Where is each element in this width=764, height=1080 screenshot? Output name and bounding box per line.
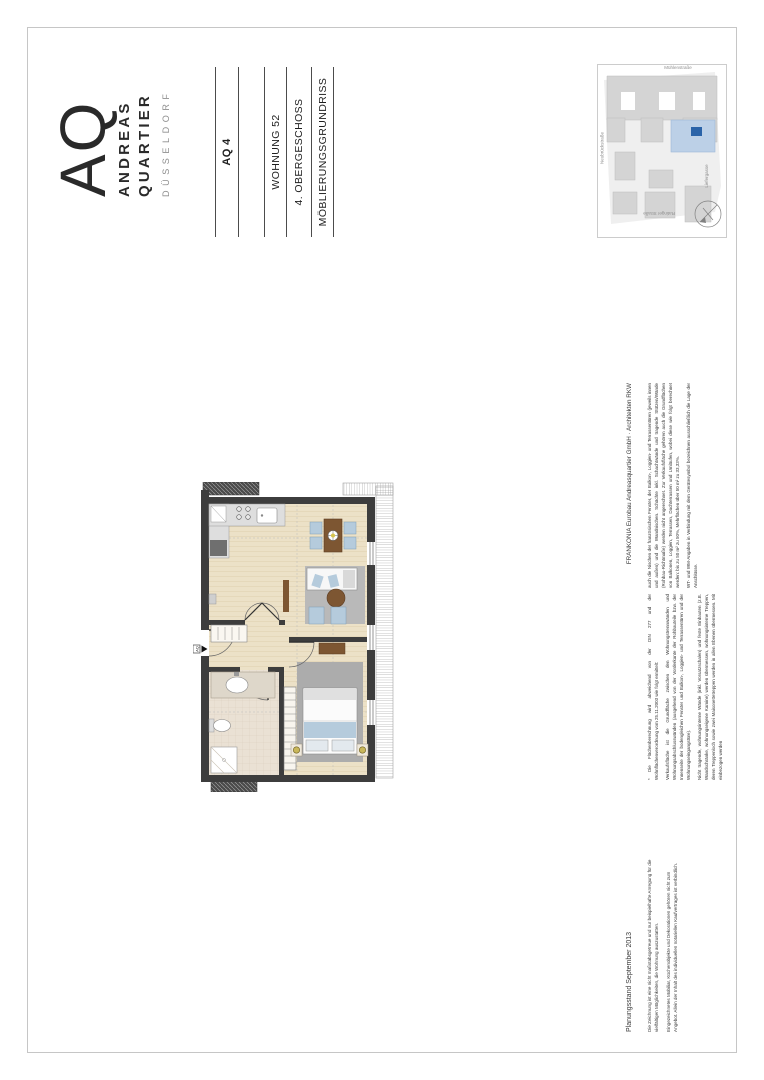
logo-word-andreas: ANDREAS: [115, 57, 135, 197]
legal-paragraph: Nicht tragende, wohnungsinterne Wände (i…: [697, 594, 725, 780]
entrance-arrow-icon: [202, 646, 208, 653]
disclaimer-block: Die Zeichnung ist eine nicht maßstabsget…: [647, 856, 685, 1032]
legal-paragraph: auch die Nischen der französischen Fenst…: [647, 383, 682, 588]
legal-paragraph: WT- und WM-Angaben in Verbindung mit dem…: [686, 383, 700, 588]
legal-paragraph: Verkaufsfläche ist die Grundfläche zwisc…: [665, 594, 693, 780]
floor-plan-drawing: AQ: [193, 482, 400, 792]
entrance-marker: AQ: [193, 645, 208, 653]
architect-credit: FRANKONIA Eurobau Andreasquartier GmbH ·…: [626, 383, 633, 630]
aq-logo: AQ ANDREAS QUARTIER DÜSSELDORF: [54, 57, 171, 197]
site-map: Neubrückstraße Mühlenstraße Liefergasse …: [597, 64, 727, 238]
entrance-label: AQ: [194, 646, 199, 652]
wardrobe-closet: [284, 687, 296, 770]
street-label-top: Neubrückstraße: [600, 131, 605, 164]
coffee-table-icon: [327, 589, 345, 607]
title-spacer-row: [238, 67, 264, 237]
toilet-icon: [214, 720, 231, 732]
title-floor: 4. OBERGESCHOSS: [286, 67, 311, 237]
logo-word-quartier: QUARTIER: [135, 57, 155, 197]
sideboard-icon: [283, 580, 289, 612]
washbasin-icon: [226, 677, 248, 693]
unit-marker: [691, 127, 702, 136]
title-project: AQ 4: [215, 67, 238, 237]
title-drawing-type: MÖBLIERUNGSGRUNDRISS: [311, 67, 333, 237]
bedside-lamp-icon: [293, 747, 299, 753]
floor-plan: AQ: [193, 482, 400, 792]
coat-closet: [211, 625, 247, 642]
street-label-right: Mühlenstraße: [664, 65, 692, 70]
kitchen-sink-icon: [257, 508, 277, 523]
title-block: AQ 4 WOHNUNG 52 4. OBERGESCHOSS MÖBLIERU…: [215, 67, 334, 237]
disclaimer-paragraph: Eingezeichnetes Mobiliar, Küchenobjekte …: [666, 856, 680, 1032]
logo-city: DÜSSELDORF: [161, 57, 171, 197]
bedside-lamp-icon: [359, 747, 365, 753]
aq-monogram: AQ: [54, 57, 113, 197]
legal-column-2: auch die Nischen der französischen Fenst…: [647, 383, 704, 588]
legal-column-1: * Die Flächenberechnung wird abweichend …: [647, 594, 729, 780]
legal-paragraph: * Die Flächenberechnung wird abweichend …: [647, 594, 661, 780]
title-unit: WOHNUNG 52: [264, 67, 286, 237]
site-map-drawing: Neubrückstraße Mühlenstraße Liefergasse …: [597, 64, 727, 238]
pendant-lamp-icon: [328, 531, 338, 541]
dresser-icon: [319, 643, 345, 654]
plan-sheet: AQ ANDREAS QUARTIER DÜSSELDORF AQ 4 WOHN…: [0, 0, 764, 1080]
disclaimer-paragraph: Die Zeichnung ist eine nicht maßstabsget…: [647, 856, 661, 1032]
planning-status: Planungsstand September 2013: [626, 932, 633, 1032]
street-label-bottom: Liefergasse: [704, 164, 709, 188]
street-label-left: Ratinger Straße: [643, 211, 675, 216]
